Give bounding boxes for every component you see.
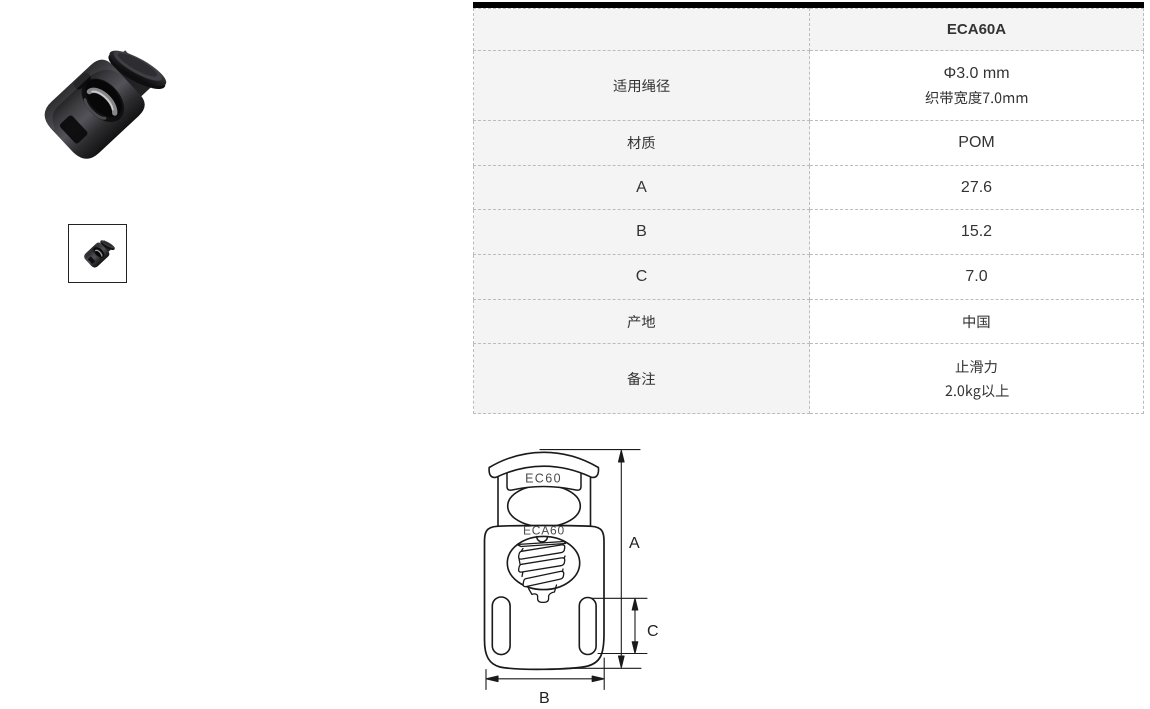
svg-text:C: C bbox=[647, 623, 659, 640]
svg-text:A: A bbox=[629, 535, 640, 552]
svg-text:ECA60: ECA60 bbox=[523, 524, 565, 538]
svg-text:B: B bbox=[539, 690, 550, 707]
svg-text:EC60: EC60 bbox=[525, 472, 562, 486]
